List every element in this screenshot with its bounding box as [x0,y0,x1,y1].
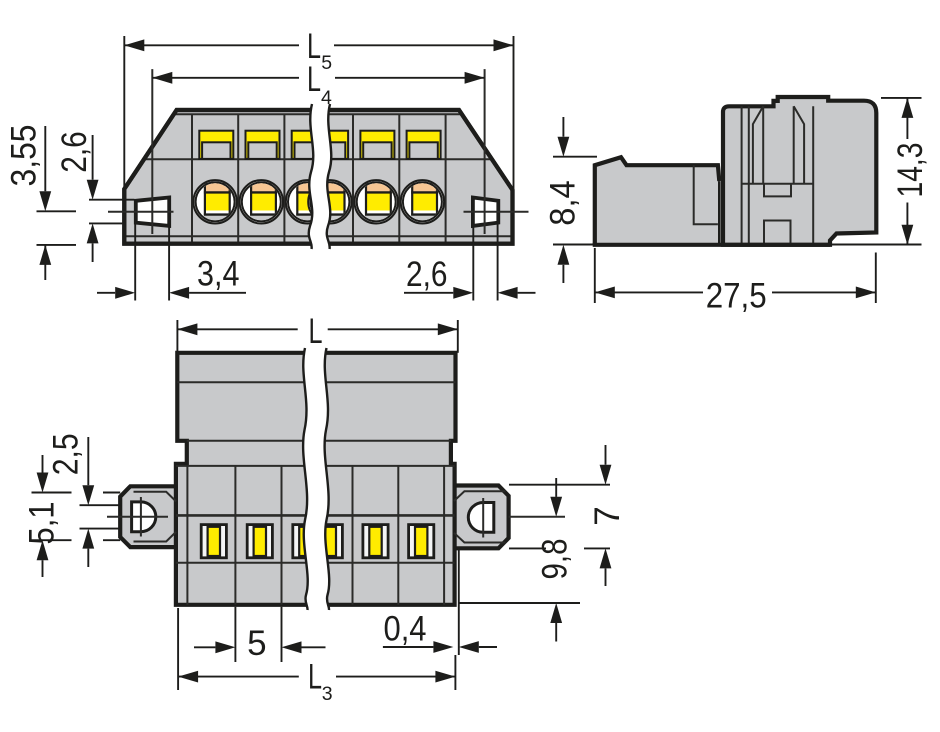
svg-text:7: 7 [588,506,627,525]
svg-text:8,4: 8,4 [544,180,583,226]
svg-text:2,6: 2,6 [55,131,94,173]
svg-text:4: 4 [321,87,332,109]
svg-text:3,4: 3,4 [197,255,240,294]
svg-text:5: 5 [321,52,332,74]
svg-text:L: L [307,60,321,99]
svg-text:2,6: 2,6 [406,255,448,294]
svg-text:27,5: 27,5 [706,276,767,315]
svg-text:3,55: 3,55 [4,125,43,187]
svg-text:2,5: 2,5 [47,433,86,475]
svg-text:L: L [308,658,322,697]
svg-text:14,3: 14,3 [891,143,930,198]
svg-text:5,1: 5,1 [23,502,62,545]
svg-text:3: 3 [322,683,333,705]
svg-text:9,8: 9,8 [535,539,574,580]
svg-text:0,4: 0,4 [384,609,427,648]
svg-text:5: 5 [247,624,266,663]
svg-text:L: L [309,312,323,351]
